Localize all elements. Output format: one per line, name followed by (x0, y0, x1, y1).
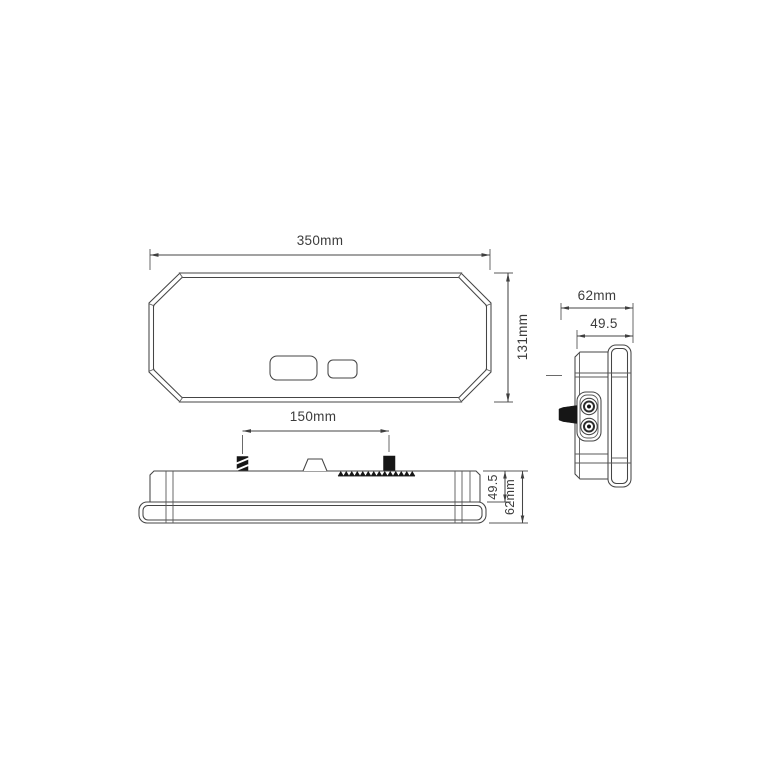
profile-depth-dimensions: 49.5 62mm (483, 471, 528, 523)
profile-center-bump (303, 459, 327, 471)
side-overall-depth-label: 62mm (578, 288, 617, 303)
front-view (149, 273, 492, 403)
front-height-dimension: 131mm (494, 273, 530, 402)
arrow-left (150, 253, 159, 257)
stud-spacing-label: 150mm (290, 409, 337, 424)
arrow-right (482, 253, 491, 257)
side-mounting-stud (559, 406, 577, 424)
profile-overall-depth-label: 62mm (503, 479, 517, 515)
front-outline-outer (149, 273, 491, 402)
front-width-label: 350mm (297, 233, 344, 248)
mounting-stud-left (237, 457, 249, 472)
arrow-down (506, 394, 510, 403)
technical-drawing-page: 350mm 131mm (0, 0, 768, 768)
arrow-right (381, 429, 390, 433)
profile-body-depth-label: 49.5 (486, 474, 500, 500)
lamp-technical-drawing: 350mm 131mm (0, 0, 768, 768)
front-width-dimension: 350mm (150, 233, 490, 270)
arrow-left (243, 429, 252, 433)
connector-bracket (577, 392, 601, 441)
side-body-depth-dimension: 49.5 (577, 316, 633, 349)
stud-spacing-dimension: 150mm (243, 409, 390, 454)
arrow-up (506, 273, 510, 282)
cable-port-lower-pin (587, 425, 591, 429)
side-body-depth-label: 49.5 (590, 316, 617, 331)
top-profile-view (139, 456, 486, 523)
side-view (546, 345, 631, 487)
cable-port-upper-pin (587, 405, 591, 409)
profile-body-outline (150, 471, 480, 502)
mounting-stud-right (384, 456, 396, 472)
front-height-label: 131mm (515, 314, 530, 361)
